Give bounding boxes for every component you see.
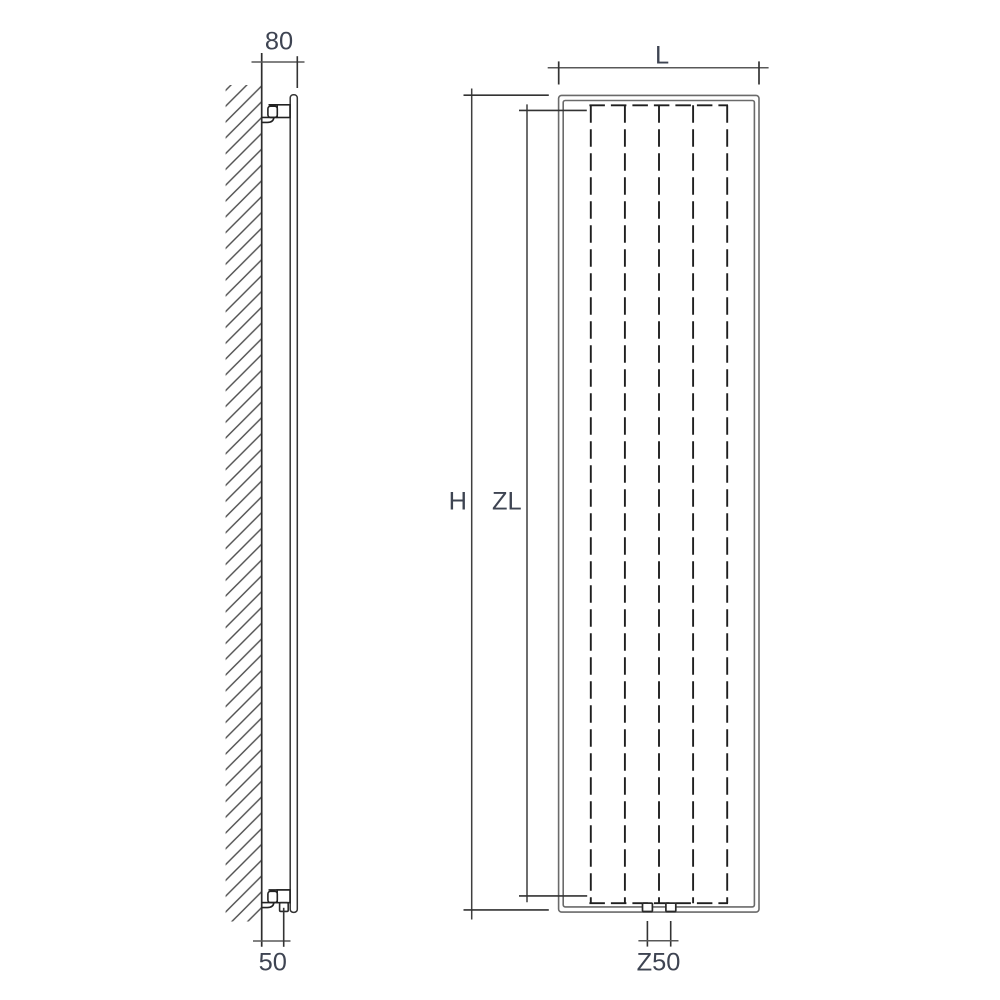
svg-text:H: H <box>449 488 467 516</box>
svg-text:80: 80 <box>265 28 293 56</box>
svg-text:Z50: Z50 <box>637 949 681 977</box>
svg-text:50: 50 <box>259 949 287 977</box>
svg-text:ZL: ZL <box>492 488 522 516</box>
svg-text:L: L <box>655 41 669 69</box>
